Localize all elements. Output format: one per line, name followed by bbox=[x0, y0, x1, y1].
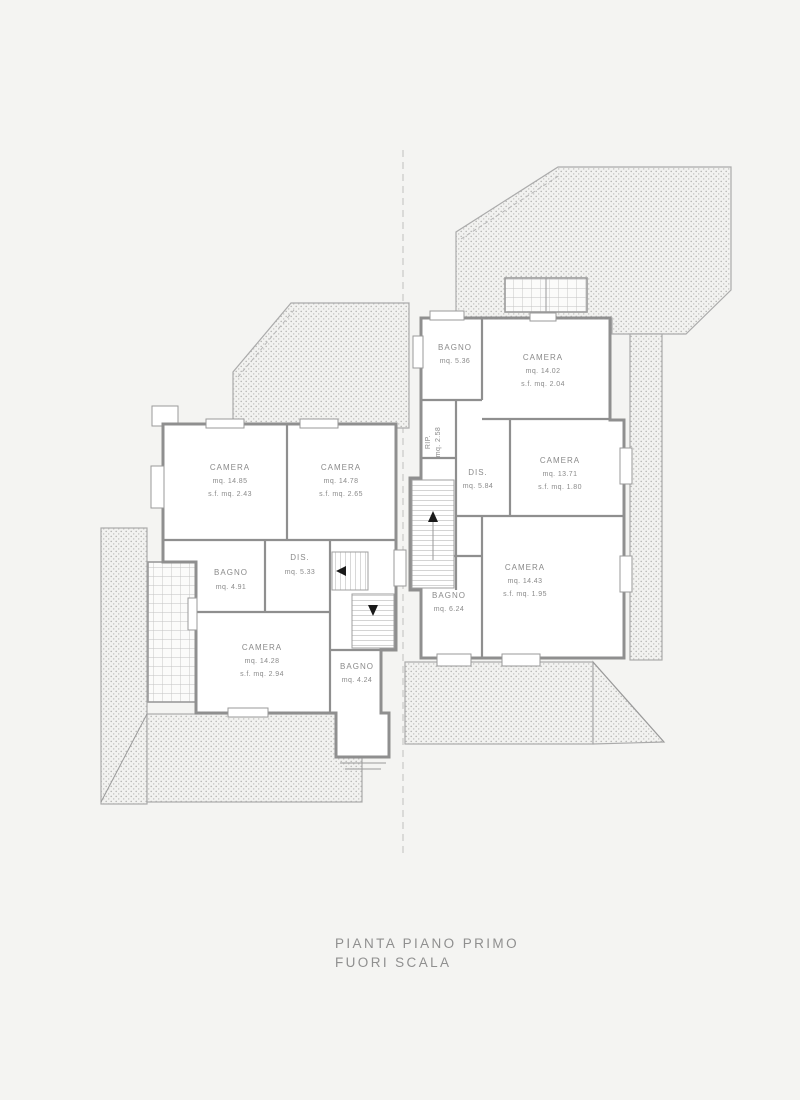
window bbox=[430, 311, 464, 320]
window bbox=[300, 419, 338, 428]
right-unit-bottom-roof-hatch bbox=[405, 662, 593, 744]
room-label: BAGNO bbox=[432, 591, 466, 600]
balcony-door bbox=[530, 313, 556, 321]
caption-subtitle: FUORI SCALA bbox=[335, 955, 451, 970]
room-area: mq. 6.24 bbox=[434, 606, 464, 613]
room-area: mq. 5.84 bbox=[463, 483, 493, 490]
window-sill bbox=[437, 654, 471, 666]
window-sill bbox=[502, 654, 540, 666]
room-area: mq. 5.36 bbox=[440, 358, 470, 365]
room-area: mq. 2.58 bbox=[435, 427, 442, 457]
stair-flight-lower bbox=[352, 594, 394, 648]
right-unit-balcony bbox=[505, 278, 587, 312]
room-sf: s.f. mq. 2.43 bbox=[208, 491, 252, 498]
room-label: CAMERA bbox=[523, 353, 563, 362]
window bbox=[206, 419, 244, 428]
room-area: mq. 4.91 bbox=[216, 584, 246, 591]
left-unit-bottom-roof-hatch bbox=[147, 714, 362, 802]
window-sill bbox=[620, 556, 632, 592]
room-label: CAMERA bbox=[540, 456, 580, 465]
room-area: mq. 14.28 bbox=[245, 658, 280, 665]
room-label: DIS. bbox=[468, 468, 488, 477]
right-unit: BAGNO mq. 5.36 CAMERA mq. 14.02 s.f. mq.… bbox=[405, 167, 731, 744]
room-area: mq. 5.33 bbox=[285, 569, 315, 576]
room-label: BAGNO bbox=[214, 568, 248, 577]
room-label: RIP. bbox=[425, 435, 432, 449]
window-sill bbox=[151, 466, 164, 508]
room-sf: s.f. mq. 1.95 bbox=[503, 591, 547, 598]
window bbox=[228, 708, 268, 717]
left-unit: CAMERA mq. 14.85 s.f. mq. 2.43 CAMERA mq… bbox=[101, 303, 409, 804]
room-area: mq. 14.02 bbox=[526, 368, 561, 375]
room-label: BAGNO bbox=[340, 662, 374, 671]
room-label: CAMERA bbox=[242, 643, 282, 652]
room-area: mq. 13.71 bbox=[543, 471, 578, 478]
room-area: mq. 4.24 bbox=[342, 677, 372, 684]
left-unit-balcony-tile-grid bbox=[148, 562, 200, 702]
room-area: mq. 14.78 bbox=[324, 478, 359, 485]
room-label: BAGNO bbox=[438, 343, 472, 352]
room-label: DIS. bbox=[290, 553, 310, 562]
room-label: CAMERA bbox=[210, 463, 250, 472]
right-unit-staircase bbox=[412, 480, 454, 588]
balcony-door bbox=[188, 598, 197, 630]
window-sill bbox=[394, 550, 406, 586]
room-sf: s.f. mq. 2.65 bbox=[319, 491, 363, 498]
right-unit-side-roof-strip bbox=[630, 334, 662, 660]
room-sf: s.f. mq. 2.04 bbox=[521, 381, 565, 388]
room-label: CAMERA bbox=[321, 463, 361, 472]
left-unit-top-roof-hatch bbox=[233, 303, 409, 428]
room-sf: s.f. mq. 1.80 bbox=[538, 484, 582, 491]
left-unit-side-roof-strip bbox=[101, 528, 147, 804]
right-unit-top-roof-hatch bbox=[456, 167, 731, 334]
scanned-floor-plan-page: BAGNO mq. 5.36 CAMERA mq. 14.02 s.f. mq.… bbox=[0, 0, 800, 1100]
room-label: CAMERA bbox=[505, 563, 545, 572]
room-area: mq. 14.43 bbox=[508, 578, 543, 585]
window-sill bbox=[620, 448, 632, 484]
room-sf: s.f. mq. 2.94 bbox=[240, 671, 284, 678]
caption-title: PIANTA PIANO PRIMO bbox=[335, 936, 519, 951]
room-area: mq. 14.85 bbox=[213, 478, 248, 485]
window-sill bbox=[413, 336, 423, 368]
floor-plan-drawing: BAGNO mq. 5.36 CAMERA mq. 14.02 s.f. mq.… bbox=[0, 0, 800, 1100]
caption: PIANTA PIANO PRIMO FUORI SCALA bbox=[335, 936, 519, 970]
